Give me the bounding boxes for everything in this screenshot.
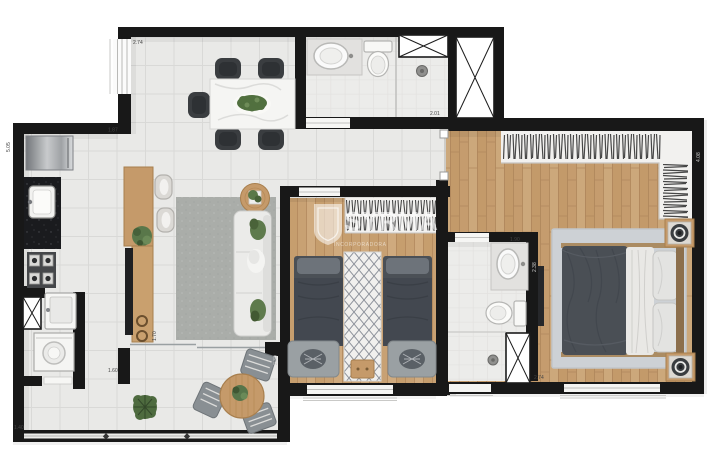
svg-text:1.87: 1.87 <box>108 128 118 134</box>
svg-text:SYRMA: SYRMA <box>344 206 438 236</box>
svg-text:2.01: 2.01 <box>430 111 440 117</box>
svg-text:4.08: 4.08 <box>696 152 702 162</box>
svg-text:2.74: 2.74 <box>534 375 544 381</box>
svg-text:1.70: 1.70 <box>152 331 158 341</box>
svg-text:INCORPORADORA: INCORPORADORA <box>334 242 387 248</box>
svg-text:5.05: 5.05 <box>6 142 12 152</box>
svg-text:2.38: 2.38 <box>532 262 538 272</box>
svg-text:1.40: 1.40 <box>14 425 24 431</box>
svg-text:1.60: 1.60 <box>108 368 118 374</box>
svg-text:1.90: 1.90 <box>510 237 520 243</box>
svg-text:2.30: 2.30 <box>273 355 279 365</box>
svg-text:2.74: 2.74 <box>133 40 143 46</box>
